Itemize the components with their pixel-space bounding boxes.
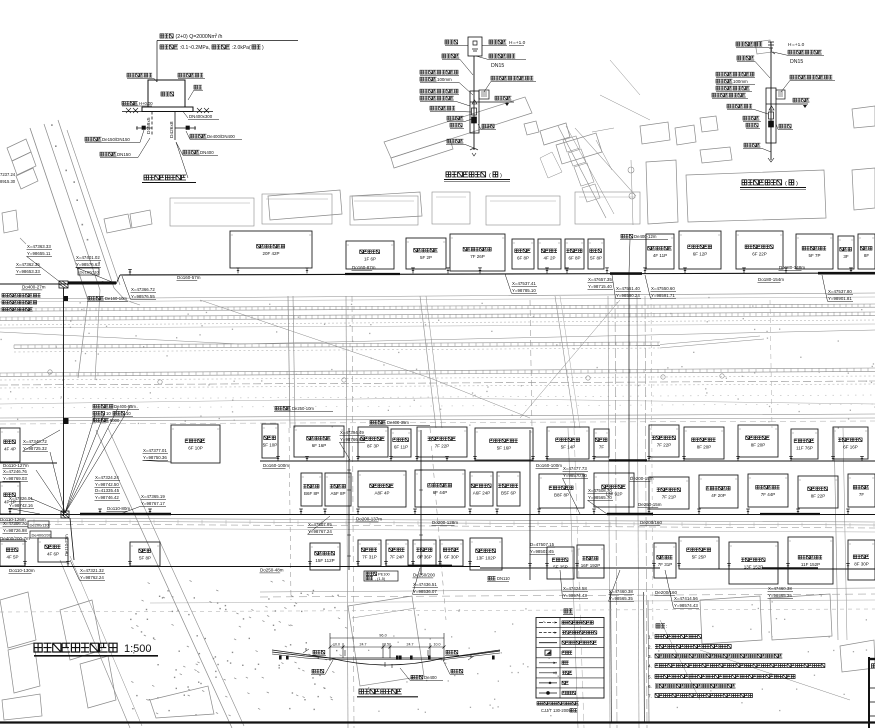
svg-text:1:500: 1:500 (124, 643, 152, 655)
svg-text:DN15: DN15 (491, 63, 504, 69)
svg-text:6F 11P: 6F 11P (394, 445, 408, 450)
svg-text:7F: 7F (599, 445, 605, 450)
svg-text:Y=98655.11: Y=98655.11 (27, 251, 51, 256)
svg-text:De200/160: De200/160 (655, 590, 678, 595)
svg-text:/h: /h (218, 34, 222, 40)
svg-text:7F 22P: 7F 22P (657, 443, 672, 448)
svg-text:X=47321.32: X=47321.32 (80, 568, 104, 573)
svg-text:Y=98726.98: Y=98726.98 (3, 528, 27, 533)
svg-text:D=47507.15: D=47507.15 (530, 542, 555, 547)
svg-text:16F 192P: 16F 192P (581, 563, 601, 568)
svg-text:10: 10 (126, 411, 131, 416)
svg-text:Y=98576.63: Y=98576.63 (76, 262, 100, 267)
svg-text:Y=98576.55: Y=98576.55 (131, 294, 155, 299)
svg-text:Do110-127m: Do110-127m (3, 463, 29, 468)
svg-text:7F 31P: 7F 31P (658, 562, 673, 567)
svg-text:X=47414.56: X=47414.56 (674, 596, 698, 601)
svg-text:Do110-130m: Do110-130m (9, 568, 35, 573)
svg-text:Y=98742.16: Y=98742.16 (9, 503, 33, 508)
svg-text:8F 20P: 8F 20P (697, 445, 712, 450)
svg-text:11F 76P: 11F 76P (796, 446, 813, 451)
svg-text:D159x5: D159x5 (146, 117, 152, 134)
svg-text:B5F 6P: B5F 6P (501, 491, 516, 496)
svg-text:5F 14P: 5F 14P (561, 445, 576, 450)
svg-text:4F 20P: 4F 20P (711, 493, 726, 498)
svg-text:CJJ/T 130-2009: CJJ/T 130-2009 (541, 708, 571, 713)
svg-text:7F 31P: 7F 31P (362, 555, 377, 560)
svg-text:100mm: 100mm (437, 77, 452, 82)
svg-text:Y=98591.71: Y=98591.71 (651, 293, 675, 298)
svg-text:6F 8P: 6F 8P (568, 256, 580, 261)
svg-text:De400: De400 (424, 675, 437, 680)
svg-text:4F 4P: 4F 4P (4, 447, 16, 452)
svg-text:5F 7P: 5F 7P (808, 253, 820, 258)
svg-text:De250/200: De250/200 (413, 573, 436, 578)
svg-text:X=47561.40: X=47561.40 (616, 286, 640, 291)
svg-text:Y=98769.03: Y=98769.03 (3, 476, 27, 481)
svg-text:X=47365.19: X=47365.19 (141, 494, 165, 499)
svg-text:6F 44P: 6F 44P (433, 490, 448, 495)
svg-text::: : (666, 624, 667, 630)
svg-text:X=47394.49: X=47394.49 (340, 430, 364, 435)
svg-text:5000: 5000 (110, 418, 120, 423)
svg-text:DN110: DN110 (497, 576, 510, 581)
svg-text:(2+0) Q=2000Nm: (2+0) Q=2000Nm (176, 34, 216, 40)
svg-text:De400-12m: De400-12m (634, 234, 657, 239)
svg-text:(: ( (785, 181, 787, 187)
svg-text:Do160-100m: Do160-100m (263, 463, 289, 468)
svg-text:X=47246.76: X=47246.76 (3, 469, 27, 474)
svg-text:Do180-148m: Do180-148m (779, 265, 805, 270)
svg-text:8F 22P: 8F 22P (811, 494, 826, 499)
svg-text:5F 16P: 5F 16P (497, 446, 512, 451)
svg-text:X=47537.80: X=47537.80 (828, 289, 852, 294)
svg-text:6F 36P: 6F 36P (417, 555, 432, 560)
svg-text:4F 5P: 4F 5P (6, 555, 18, 560)
svg-text:8915.30: 8915.30 (0, 179, 16, 184)
svg-text:7F 22P: 7F 22P (435, 444, 450, 449)
svg-text:X=47507.85: X=47507.85 (308, 522, 332, 527)
svg-text:1F 6P: 1F 6P (364, 257, 376, 262)
svg-text:Do160-57m: Do160-57m (177, 275, 201, 280)
svg-text:): ) (796, 181, 798, 187)
svg-text:De200/160: De200/160 (640, 520, 663, 525)
svg-text:3.: 3. (648, 654, 652, 659)
svg-text:X=47508.70: X=47508.70 (588, 488, 612, 493)
svg-text:24.7: 24.7 (407, 643, 414, 647)
svg-text:Y=98785.10: Y=98785.10 (512, 288, 536, 293)
svg-text:Y=98565.35: Y=98565.35 (609, 596, 633, 601)
svg-text:Y=98501.45: Y=98501.45 (530, 549, 554, 554)
svg-text:Y=98767.17: Y=98767.17 (141, 501, 165, 506)
svg-text:8F: 8F (864, 253, 870, 258)
svg-text:Y=98653.33: Y=98653.33 (16, 269, 40, 274)
svg-text:Y=98725.32: Y=98725.32 (23, 446, 47, 451)
svg-text:7F 44P: 7F 44P (761, 492, 776, 497)
svg-text:Y=98762.24: Y=98762.24 (80, 575, 104, 580)
svg-text:De200/110: De200/110 (30, 522, 50, 527)
svg-text::0.1~0.2MPa,: :0.1~0.2MPa, (180, 45, 210, 51)
svg-text:X=47363.33: X=47363.33 (27, 244, 51, 249)
svg-text:De250-15m: De250-15m (638, 502, 662, 507)
svg-text:6F 16P: 6F 16P (312, 443, 327, 448)
svg-text:6F 10P: 6F 10P (188, 446, 203, 451)
svg-text:, (1.5): , (1.5) (375, 576, 386, 581)
svg-text:7F: 7F (859, 492, 865, 497)
svg-text:Y=98766.84: Y=98766.84 (340, 437, 364, 442)
svg-text:Do250-48m: Do250-48m (260, 568, 284, 573)
svg-text:8.5: 8.5 (384, 643, 389, 647)
svg-text:3: 3 (215, 33, 217, 37)
svg-text:10.0: 10.0 (434, 643, 441, 647)
svg-text:4.: 4. (648, 664, 652, 669)
svg-text:10.0: 10.0 (333, 643, 340, 647)
svg-text:Do200-128m: Do200-128m (432, 520, 458, 525)
svg-text:Do110-126m: Do110-126m (0, 517, 26, 522)
svg-text:Y=98742.50: Y=98742.50 (95, 482, 119, 487)
svg-text:6F 16P: 6F 16P (843, 445, 858, 450)
svg-text:6F 8P: 6F 8P (517, 256, 529, 261)
svg-text:Y=98590.24: Y=98590.24 (616, 293, 640, 298)
svg-text:15F 112P: 15F 112P (315, 558, 334, 563)
svg-text:X=47340.72: X=47340.72 (23, 439, 47, 444)
svg-text:5F 2P: 5F 2P (420, 255, 432, 260)
svg-text:5F 25P: 5F 25P (553, 565, 568, 570)
svg-text:6F 22P: 6F 22P (752, 252, 767, 257)
svg-text:1.: 1. (648, 635, 652, 640)
svg-text:A5F 8P: A5F 8P (330, 491, 345, 496)
svg-text::2.0kPa(: :2.0kPa( (232, 45, 251, 51)
svg-text:7237.24: 7237.24 (0, 172, 16, 177)
svg-text:8F 3P: 8F 3P (367, 444, 379, 449)
svg-text:DN400: DN400 (200, 150, 214, 155)
svg-text:Y=98570.90: Y=98570.90 (563, 473, 587, 478)
svg-text:5F 8P: 5F 8P (139, 556, 151, 561)
svg-text:H+0.00: H+0.00 (139, 101, 153, 106)
svg-text:B6F 8P: B6F 8P (304, 491, 319, 496)
svg-text:Do400-27m: Do400-27m (22, 285, 46, 290)
svg-text:X=47401.02: X=47401.02 (76, 255, 100, 260)
svg-text:X=47657.35: X=47657.35 (588, 277, 612, 282)
svg-text:8F 20P: 8F 20P (751, 443, 766, 448)
svg-text:X=47377.01: X=47377.01 (143, 448, 167, 453)
svg-text:D=41335.45: D=41335.45 (95, 488, 120, 493)
svg-text:DN15: DN15 (790, 59, 803, 65)
svg-text:5F 10P: 5F 10P (263, 443, 278, 448)
svg-text:4F 2P: 4F 2P (543, 256, 555, 261)
svg-text:13F 102P: 13F 102P (476, 556, 496, 561)
svg-text:X=47324.24: X=47324.24 (95, 475, 119, 480)
svg-text:6F 30P: 6F 30P (444, 555, 459, 560)
svg-text:De400/200: De400/200 (32, 532, 52, 537)
svg-text:Y=98746.42: Y=98746.42 (95, 495, 119, 500)
svg-text:Do200-137m: Do200-137m (356, 517, 382, 522)
svg-text:Y=98715.40: Y=98715.40 (588, 284, 612, 289)
svg-text:DN400x300: DN400x300 (189, 114, 213, 119)
svg-text:Y=98536.07: Y=98536.07 (413, 589, 437, 594)
svg-text:Y=98565.70: Y=98565.70 (588, 495, 612, 500)
svg-text:A8F 4P: A8F 4P (374, 491, 389, 496)
svg-text:Y=98901.81: Y=98901.81 (828, 296, 852, 301)
svg-text:96.0: 96.0 (379, 634, 386, 638)
svg-text:6.: 6. (648, 684, 652, 689)
svg-text:=+1.0: =+1.0 (513, 40, 526, 46)
svg-text:8F 30P: 8F 30P (854, 562, 869, 567)
svg-text:): ) (500, 173, 502, 179)
svg-text:Y=98574.43: Y=98574.43 (563, 593, 587, 598)
svg-text:20F 42P: 20F 42P (262, 251, 279, 256)
svg-text:De400-35m: De400-35m (387, 420, 409, 425)
svg-text:Y=98574.43: Y=98574.43 (674, 603, 698, 608)
svg-text:Do160-100m: Do160-100m (536, 463, 562, 468)
svg-text:Y=98767.24: Y=98767.24 (308, 529, 332, 534)
svg-text:D426x8: D426x8 (169, 121, 175, 138)
svg-text:De160-10m: De160-10m (105, 296, 127, 301)
svg-text:7F 21P: 7F 21P (662, 495, 677, 500)
svg-text:5.: 5. (648, 675, 652, 680)
svg-text:Y=98750.36: Y=98750.36 (143, 455, 167, 460)
svg-text:De400-93m: De400-93m (114, 404, 136, 409)
svg-text:(: ( (489, 173, 491, 179)
svg-text:5F 8P: 5F 8P (590, 256, 602, 261)
svg-text:100mm: 100mm (733, 79, 748, 84)
svg-text:De400/DN400: De400/DN400 (207, 134, 235, 139)
svg-text:7.: 7. (648, 694, 652, 699)
svg-text:24.7: 24.7 (360, 643, 367, 647)
svg-text:5F 25P: 5F 25P (692, 555, 707, 560)
svg-text:Do110-80m: Do110-80m (107, 506, 130, 511)
svg-text:De200-15m: De200-15m (630, 476, 654, 481)
svg-text:=+1.0: =+1.0 (792, 42, 805, 48)
svg-text:Y=98565.35: Y=98565.35 (768, 593, 792, 598)
svg-text:A6F 24P: A6F 24P (473, 491, 491, 496)
svg-text:De150/DN150: De150/DN150 (102, 137, 130, 142)
svg-text:Do180-154m: Do180-154m (758, 277, 784, 282)
svg-text:X=47537.41: X=47537.41 (512, 281, 536, 286)
svg-text:X=47436.51: X=47436.51 (413, 582, 437, 587)
svg-text:4F 11P: 4F 11P (653, 253, 667, 258)
svg-text:X=47366.72: X=47366.72 (131, 287, 155, 292)
svg-text:3F: 3F (843, 254, 849, 259)
svg-text:DN150: DN150 (117, 152, 131, 157)
svg-text:10: 10 (106, 411, 111, 416)
svg-text:2.: 2. (648, 645, 652, 650)
svg-text:Do160-87m: Do160-87m (352, 265, 376, 270)
svg-text:X=47362.35: X=47362.35 (16, 262, 40, 267)
svg-text:De250-10m: De250-10m (292, 406, 314, 411)
svg-text:X=47424.58: X=47424.58 (563, 586, 587, 591)
svg-text:X=47477.73: X=47477.73 (563, 466, 587, 471)
svg-text:11F 152P: 11F 152P (801, 562, 820, 567)
svg-text:7F 24P: 7F 24P (390, 555, 405, 560)
svg-text:B8F 8P: B8F 8P (554, 493, 569, 498)
svg-text:7F 26P: 7F 26P (470, 254, 485, 259)
svg-text:X=47326.01: X=47326.01 (9, 496, 33, 501)
svg-text:4F 6P: 4F 6P (47, 552, 59, 557)
svg-text:6F 12P: 6F 12P (693, 252, 708, 257)
svg-text:X=47550.60: X=47550.60 (651, 286, 675, 291)
svg-text:X=47460.38: X=47460.38 (768, 586, 792, 591)
